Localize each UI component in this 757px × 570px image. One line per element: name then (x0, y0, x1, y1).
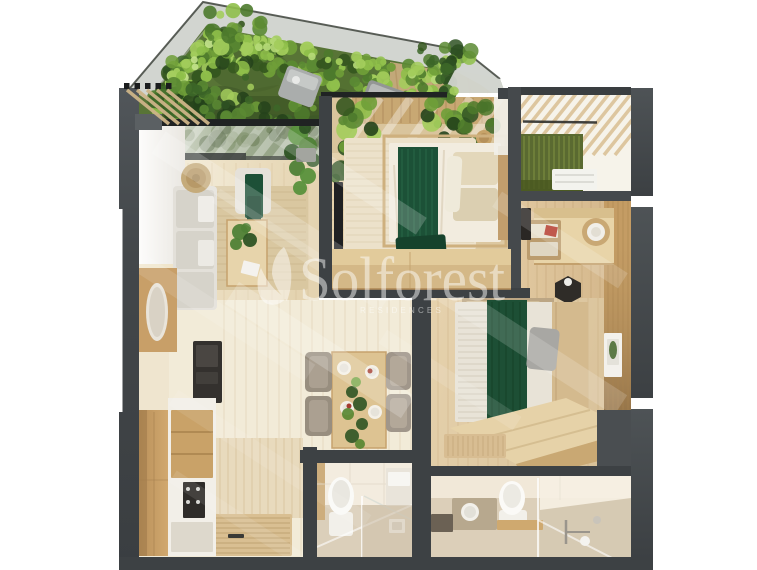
svg-text:Solforest: Solforest (299, 246, 505, 314)
svg-text:RESIDENCES: RESIDENCES (360, 306, 444, 315)
